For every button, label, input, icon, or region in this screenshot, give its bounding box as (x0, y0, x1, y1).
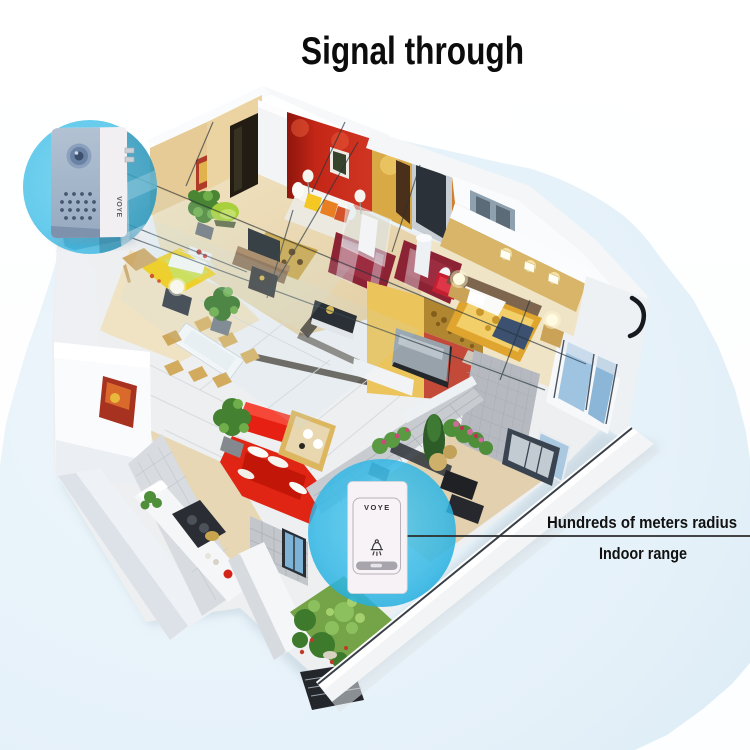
svg-text:Indoor range: Indoor range (599, 545, 687, 563)
svg-text:Signal through: Signal through (301, 30, 524, 73)
svg-text:VOYE: VOYE (364, 503, 391, 512)
svg-text:Hundreds of meters radius: Hundreds of meters radius (547, 514, 737, 532)
svg-text:VOYE: VOYE (115, 196, 122, 217)
